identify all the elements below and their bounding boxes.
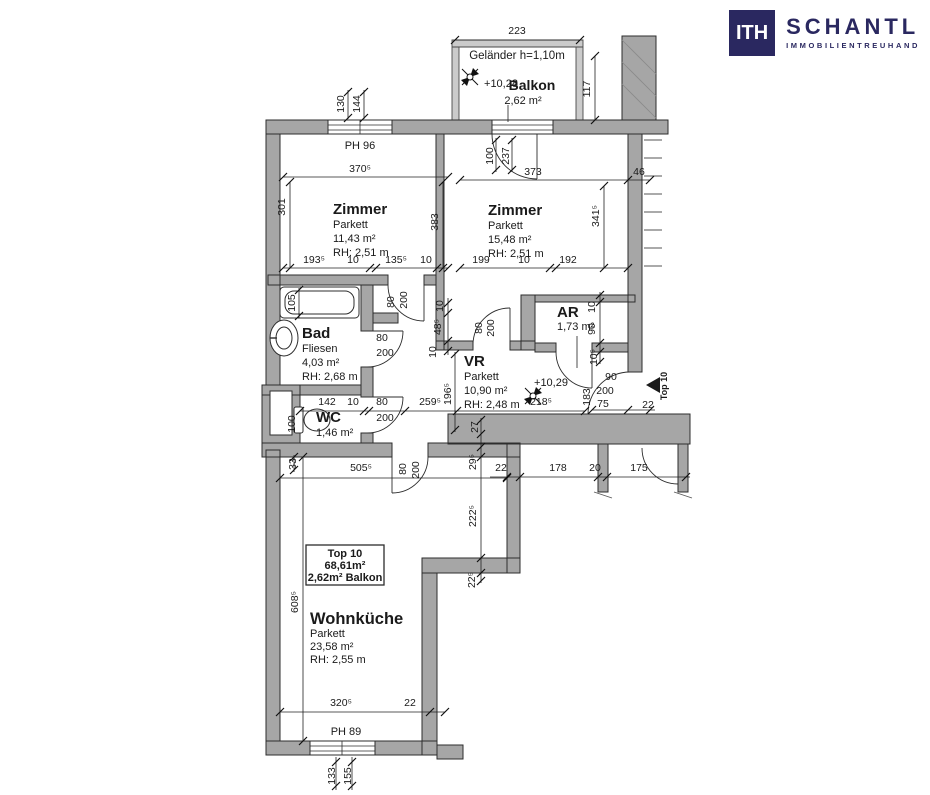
logo-company-name: SCHANTL	[786, 16, 920, 38]
dimension-label: 383	[429, 213, 441, 231]
dimension-label: 155	[342, 767, 354, 785]
dimension-label: 142	[318, 396, 336, 408]
floor-plan-svg: ZimmerParkett11,43 m²RH: 2,51 mZimmerPar…	[0, 0, 930, 795]
dimension-label: 105	[286, 294, 298, 312]
logo-monogram: ITH	[736, 22, 768, 45]
dimension-label: 48⁵	[432, 319, 444, 335]
entrance-arrow-icon	[646, 377, 660, 393]
dimension-label: 200	[596, 385, 614, 397]
dimension-label: 22	[495, 462, 507, 474]
dimension-label: 196⁵	[442, 383, 454, 405]
room-label-zimmer-2: Parkett	[488, 220, 523, 232]
dimension-label: 90	[605, 371, 617, 383]
dimension-label: 218⁵	[530, 396, 552, 408]
unit-summary-line: Top 10	[328, 548, 363, 560]
room-label-vr: RH: 2,48 m	[464, 399, 520, 411]
logo-wordmark: SCHANTL IMMOBILIENTREUHAND	[786, 16, 920, 50]
dimension-label: 144	[351, 95, 363, 113]
dimension-label: 200	[376, 347, 394, 359]
room-label-bad: Bad	[302, 325, 330, 342]
dimension-label: 46	[633, 166, 645, 178]
dimension-label: 10	[518, 254, 530, 266]
dimension-label: 90	[586, 323, 598, 335]
dimension-label: 237	[500, 147, 512, 165]
room-label-ar: AR	[557, 304, 579, 321]
room-label-wohnkueche: Parkett	[310, 628, 345, 640]
dimension-label: 10	[347, 396, 359, 408]
room-label-zimmer-2: 15,48 m²	[488, 234, 532, 246]
dimension-label: 199	[472, 254, 490, 266]
dimension-label: 100	[484, 147, 496, 165]
logo-subtitle: IMMOBILIENTREUHAND	[786, 41, 920, 50]
dimension-label: 135⁵	[385, 254, 407, 266]
dimension-label: 29⁵	[467, 454, 479, 470]
dimension-label: 80	[376, 396, 388, 408]
room-label-zimmer-1: 11,43 m²	[333, 233, 376, 245]
room-label-bad: 4,03 m²	[302, 357, 340, 369]
annotation-label: Top 10	[659, 372, 669, 400]
dimension-label: 222⁵	[467, 505, 479, 527]
room-label-zimmer-1: Zimmer	[333, 201, 387, 218]
dimension-label: 20	[589, 462, 601, 474]
dimension-label: 200	[376, 412, 394, 424]
unit-summary-line: 2,62m² Balkon	[308, 572, 383, 584]
brand-logo: ITH SCHANTL IMMOBILIENTREUHAND	[729, 10, 920, 56]
dimension-label: 200	[485, 319, 497, 337]
dimension-label: 117	[581, 80, 593, 97]
annotation-label: +10,29	[534, 377, 568, 389]
stair-ticks	[644, 140, 662, 266]
room-label-wohnkueche: RH: 2,55 m	[310, 654, 366, 666]
room-label-wc: WC	[316, 409, 341, 426]
dimension-label: 10	[434, 300, 446, 312]
dimension-label: 100	[286, 415, 298, 433]
annotation-label: Geländer h=1,10m	[469, 50, 565, 62]
dimension-label: 320⁵	[330, 697, 352, 709]
dimension-label: 301	[276, 198, 288, 216]
dimension-label: 10	[586, 301, 598, 313]
room-label-vr: Parkett	[464, 371, 499, 383]
dimension-label: 33	[287, 458, 299, 470]
dimension-label: 200	[398, 291, 410, 309]
break-marks	[594, 492, 692, 498]
dimension-label: 259⁵	[419, 396, 441, 408]
dimension-label: 22	[404, 697, 416, 709]
dimension-label: 183	[581, 388, 593, 406]
dimension-label: 178	[549, 462, 567, 474]
level-marker-icon	[461, 68, 479, 86]
room-label-bad: RH: 2,68 m	[302, 371, 358, 383]
room-label-zimmer-2: RH: 2,51 m	[488, 248, 544, 260]
room-label-wc: 1,46 m²	[316, 427, 354, 439]
dimension-label: 80	[473, 322, 485, 334]
room-label-bad: Fliesen	[302, 343, 337, 355]
dimension-label: 22	[642, 399, 654, 411]
dimension-label: 200	[410, 461, 422, 479]
dimension-label: 192	[559, 254, 577, 266]
annotation-label: PH 96	[345, 140, 376, 152]
dimension-label: 10	[427, 346, 439, 358]
dimension-label: 10⁵	[588, 349, 600, 365]
room-label-wohnkueche: 23,58 m²	[310, 641, 354, 653]
dimension-label: 80	[385, 296, 397, 308]
room-label-vr: 10,90 m²	[464, 385, 508, 397]
ith-monogram-icon: ITH	[729, 10, 775, 56]
washbasin-icon	[270, 320, 298, 356]
dimension-label: 10	[347, 254, 359, 266]
annotation-label: PH 89	[331, 726, 362, 738]
annotation-label: Balkon	[509, 77, 556, 93]
room-label-wohnkueche: Wohnküche	[310, 610, 403, 628]
dimension-label: 223	[508, 25, 526, 37]
room-label-zimmer-2: Zimmer	[488, 202, 542, 219]
dimension-label: 75	[597, 398, 609, 410]
room-label-zimmer-1: Parkett	[333, 219, 368, 231]
room-label-zimmer-1: RH: 2,51 m	[333, 247, 389, 259]
unit-summary-line: 68,61m²	[325, 560, 366, 572]
dimension-label: 27	[469, 421, 481, 433]
room-label-vr: VR	[464, 353, 485, 370]
annotation-label: 2,62 m²	[504, 95, 542, 107]
dimension-label: 175	[630, 462, 648, 474]
dimension-label: 80	[376, 332, 388, 344]
dimension-label: 22⁵	[466, 572, 478, 588]
floor-plan-page: ITH SCHANTL IMMOBILIENTREUHAND	[0, 0, 930, 795]
dimension-label: 80	[397, 463, 409, 475]
dimension-label: 341⁵	[590, 205, 602, 227]
dimension-label: 133	[326, 767, 338, 785]
dimension-label: 193⁵	[303, 254, 325, 266]
dimension-label: 505⁵	[350, 462, 372, 474]
dimension-label: 608⁵	[289, 591, 301, 613]
dimension-label: 370⁵	[349, 163, 371, 175]
dimension-label: 10	[420, 254, 432, 266]
dimension-label: 130	[335, 95, 347, 113]
dimension-label: 373	[524, 166, 542, 178]
